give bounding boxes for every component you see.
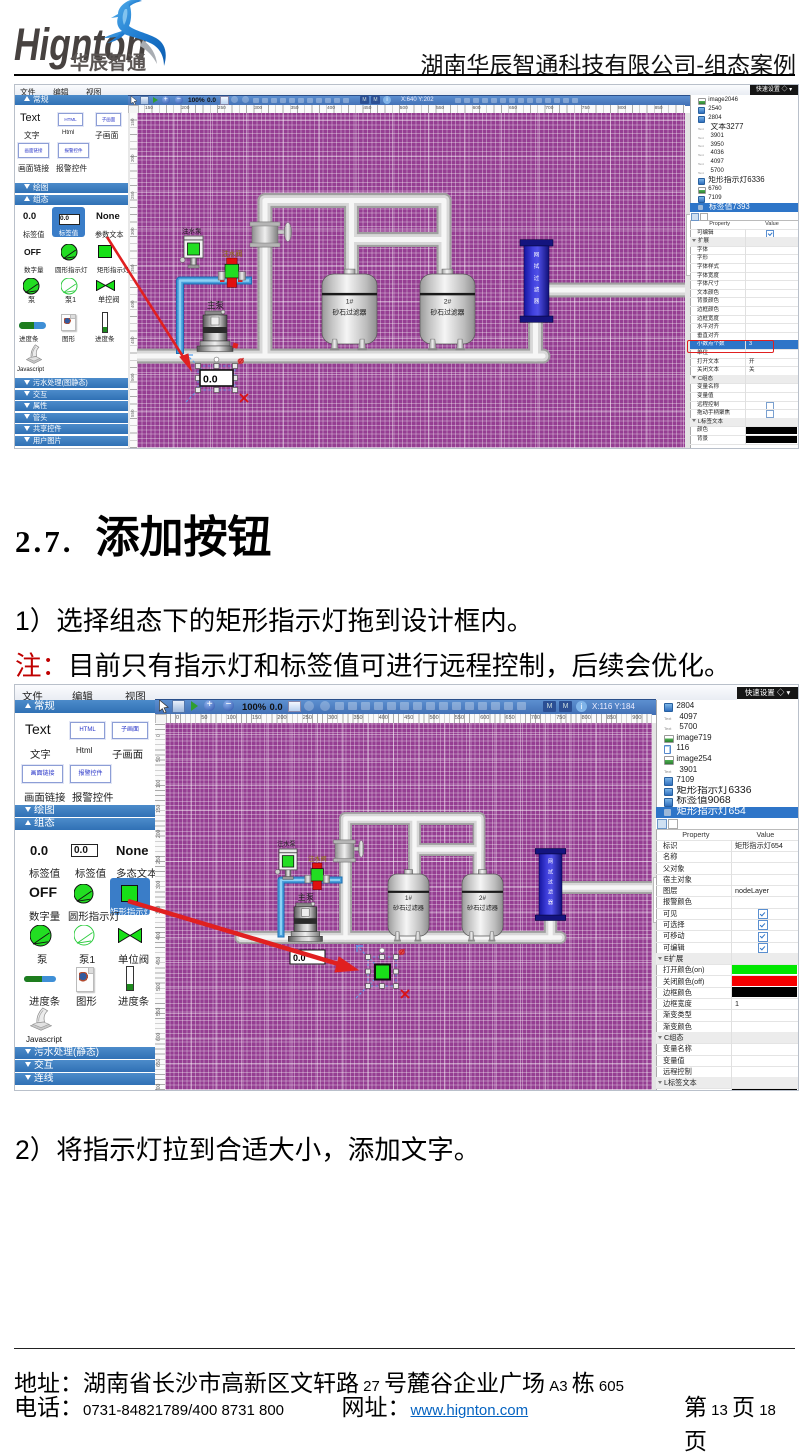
svg-text:0.0: 0.0 [203, 374, 218, 386]
svg-text:拭: 拭 [548, 868, 553, 875]
svg-text:注水泵: 注水泵 [277, 840, 295, 848]
svg-text:滤: 滤 [548, 889, 553, 896]
svg-text:网: 网 [548, 859, 553, 865]
svg-text:2#: 2# [444, 298, 452, 305]
svg-text:拭: 拭 [534, 262, 540, 270]
svg-text:器: 器 [548, 900, 553, 906]
svg-text:主泵: 主泵 [298, 892, 314, 902]
svg-text:砂石过滤器: 砂石过滤器 [467, 904, 499, 912]
svg-text:过: 过 [534, 274, 540, 282]
svg-text:1#: 1# [405, 895, 412, 902]
svg-text:注水泵: 注水泵 [182, 226, 202, 235]
svg-text:华辰智通: 华辰智通 [70, 51, 147, 74]
svg-text:注水阀: 注水阀 [222, 249, 243, 258]
svg-text:砂石过滤器: 砂石过滤器 [431, 308, 465, 317]
svg-text:砂石过滤器: 砂石过滤器 [393, 904, 425, 912]
svg-text:1#: 1# [346, 298, 354, 305]
svg-text:滤: 滤 [534, 286, 540, 294]
svg-text:注水阀: 注水阀 [308, 855, 326, 863]
svg-text:砂石过滤器: 砂石过滤器 [333, 308, 367, 317]
svg-text:网: 网 [534, 252, 540, 259]
svg-text:器: 器 [534, 298, 540, 305]
svg-text:过: 过 [548, 878, 553, 885]
svg-text:2#: 2# [479, 895, 486, 902]
svg-text:主泵: 主泵 [207, 300, 225, 310]
svg-text:0.0: 0.0 [293, 953, 306, 963]
